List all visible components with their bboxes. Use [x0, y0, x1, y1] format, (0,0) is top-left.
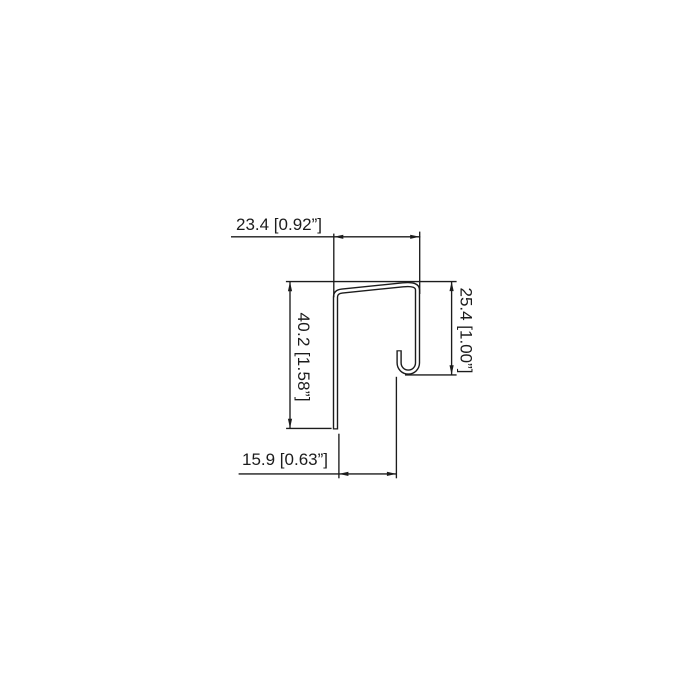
svg-text:25.4 [1.00”]: 25.4 [1.00”] [457, 288, 476, 374]
svg-text:40.2 [1.58”]: 40.2 [1.58”] [294, 313, 313, 402]
svg-text:23.4 [0.92”]: 23.4 [0.92”] [236, 215, 322, 234]
svg-text:15.9 [0.63”]: 15.9 [0.63”] [242, 450, 328, 469]
